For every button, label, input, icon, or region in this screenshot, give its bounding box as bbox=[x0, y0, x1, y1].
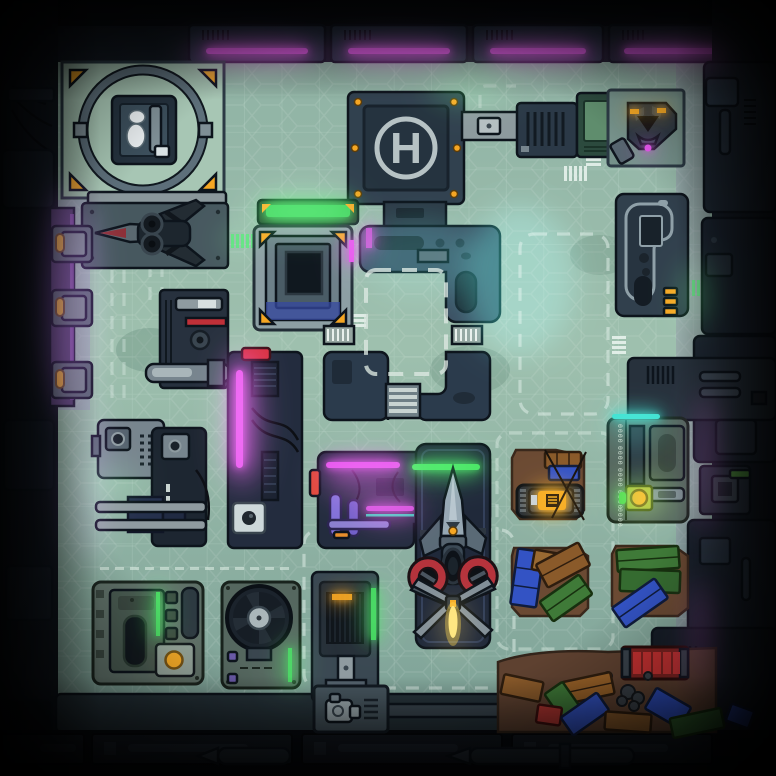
rig-marking: 0000 bbox=[616, 468, 624, 488]
signal-lamp[interactable] bbox=[631, 490, 647, 506]
turret-drone[interactable] bbox=[608, 90, 684, 166]
stairs[interactable] bbox=[386, 384, 420, 418]
press-cabinet bbox=[312, 572, 388, 732]
neon-pylon bbox=[228, 348, 302, 548]
helipad-marking: H bbox=[390, 124, 422, 173]
glow-table bbox=[258, 200, 358, 224]
scanner-box-b bbox=[162, 434, 189, 459]
signal-lamp-rig: 0000 0000 0000 0000 0000 bbox=[608, 414, 688, 528]
control-kiosk bbox=[93, 582, 203, 684]
exhaust-fan bbox=[222, 582, 300, 688]
crate-pile-a[interactable] bbox=[510, 542, 592, 621]
elevator-platform[interactable] bbox=[254, 226, 354, 330]
diagnostics-pod bbox=[616, 194, 688, 316]
cryo-console[interactable] bbox=[112, 96, 176, 164]
docking-arm bbox=[462, 112, 518, 140]
battlemap-stage: H bbox=[0, 0, 776, 776]
access-doors[interactable] bbox=[52, 226, 92, 398]
rig-marking: 0000 bbox=[616, 424, 624, 444]
battlemap-canvas[interactable]: H bbox=[0, 0, 776, 776]
top-wall bbox=[0, 0, 776, 62]
camera-box[interactable] bbox=[233, 503, 265, 533]
generator-box bbox=[314, 686, 388, 732]
red-container[interactable] bbox=[622, 647, 688, 679]
printer-unit bbox=[517, 103, 577, 157]
crate-pile-b[interactable] bbox=[612, 546, 688, 628]
rig-marking: 0000 bbox=[616, 508, 624, 528]
cargo-dump[interactable] bbox=[498, 647, 754, 738]
rig-marking: 0000 bbox=[616, 446, 624, 466]
orange-button[interactable] bbox=[166, 652, 183, 669]
landing-ring-pad[interactable] bbox=[62, 62, 224, 198]
power-tank[interactable] bbox=[512, 450, 586, 520]
fighter-drone-bay bbox=[82, 192, 228, 268]
